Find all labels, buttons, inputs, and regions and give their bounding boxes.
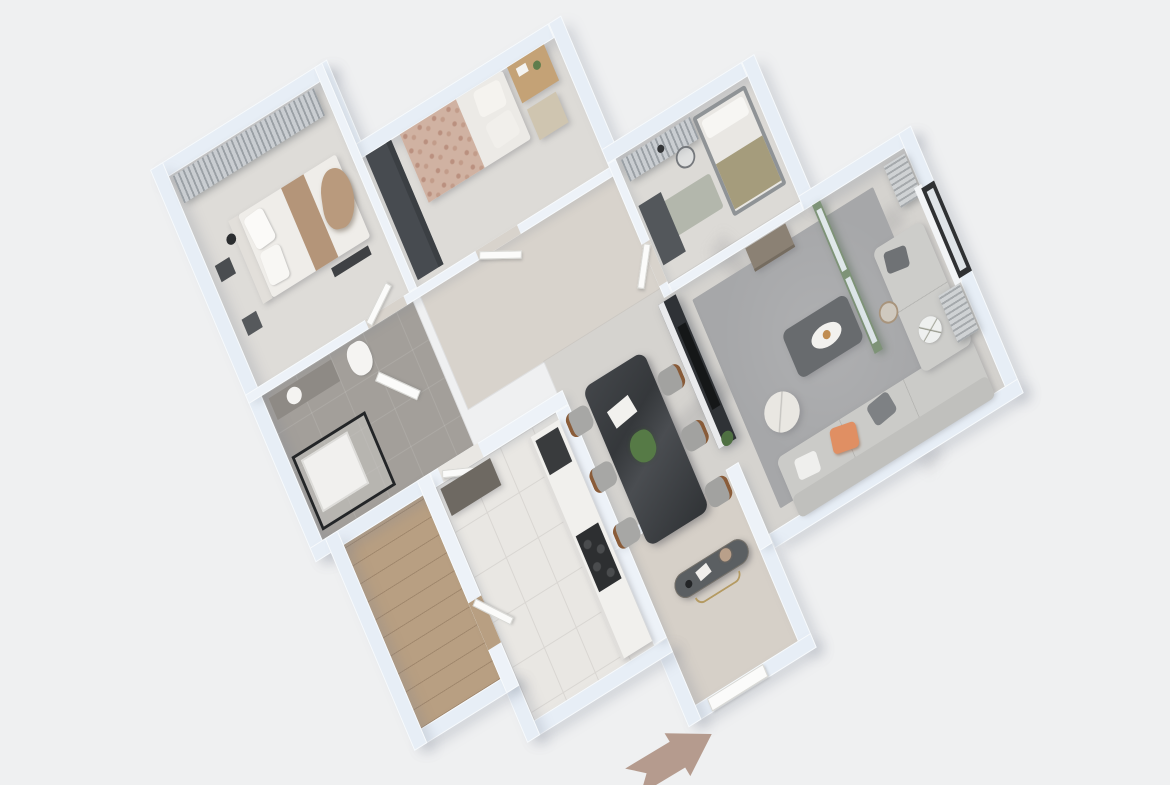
apartment-plan — [150, 0, 1098, 785]
entry-direction-arrow — [610, 690, 760, 785]
floor-plan-stage — [0, 0, 1170, 785]
bedroom2-door-leaf — [479, 250, 522, 259]
